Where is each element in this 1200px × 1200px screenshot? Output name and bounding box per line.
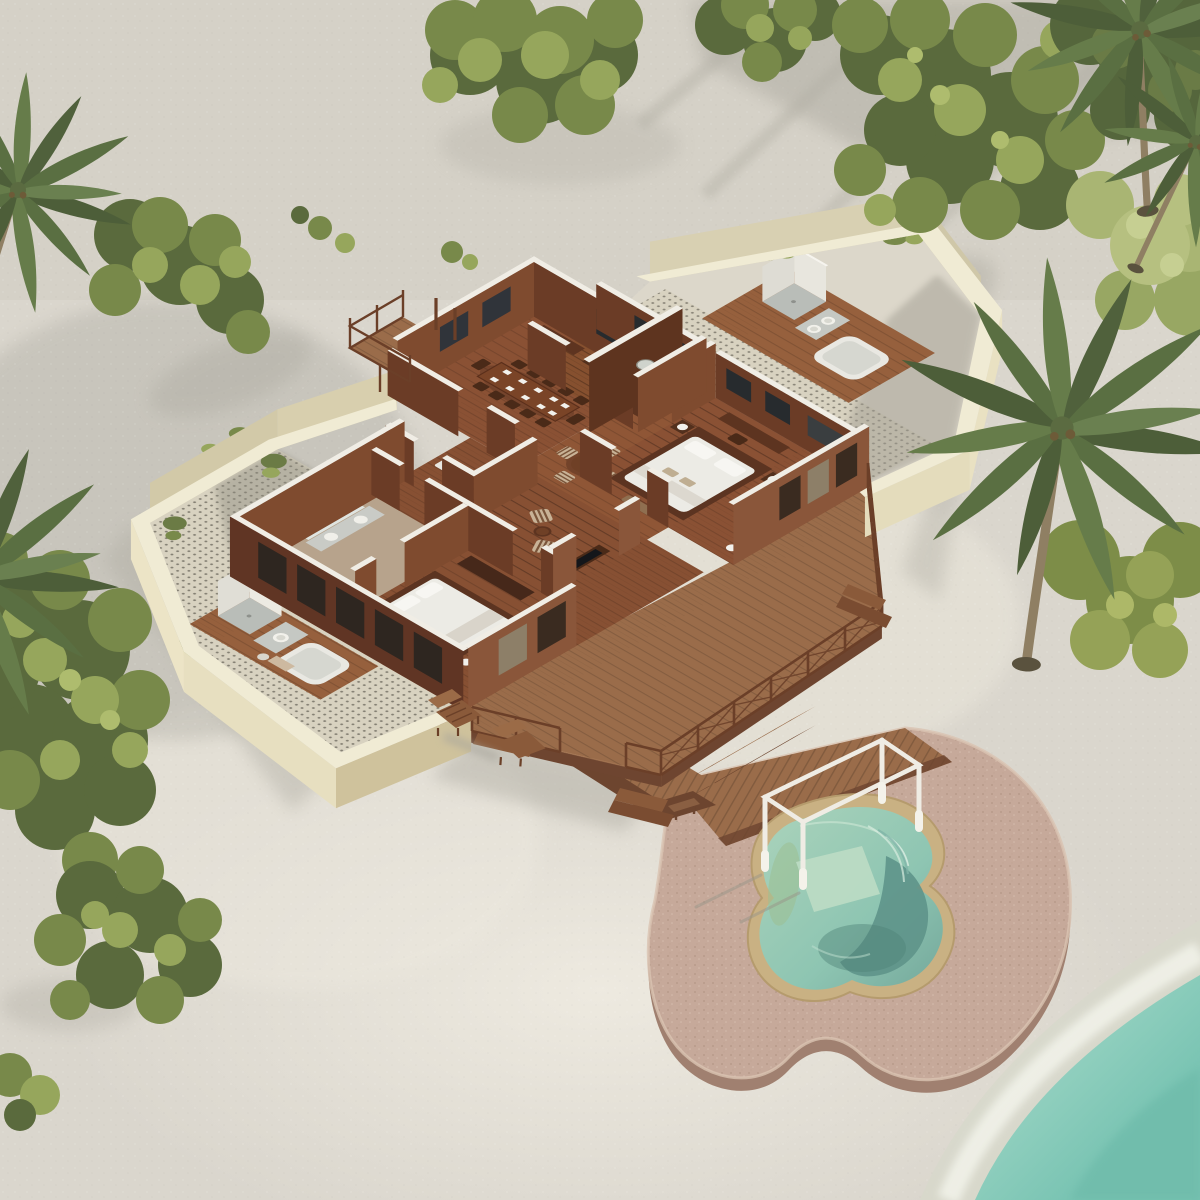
beach-villa-render [0, 0, 1200, 1200]
render-stage [0, 0, 1200, 1200]
